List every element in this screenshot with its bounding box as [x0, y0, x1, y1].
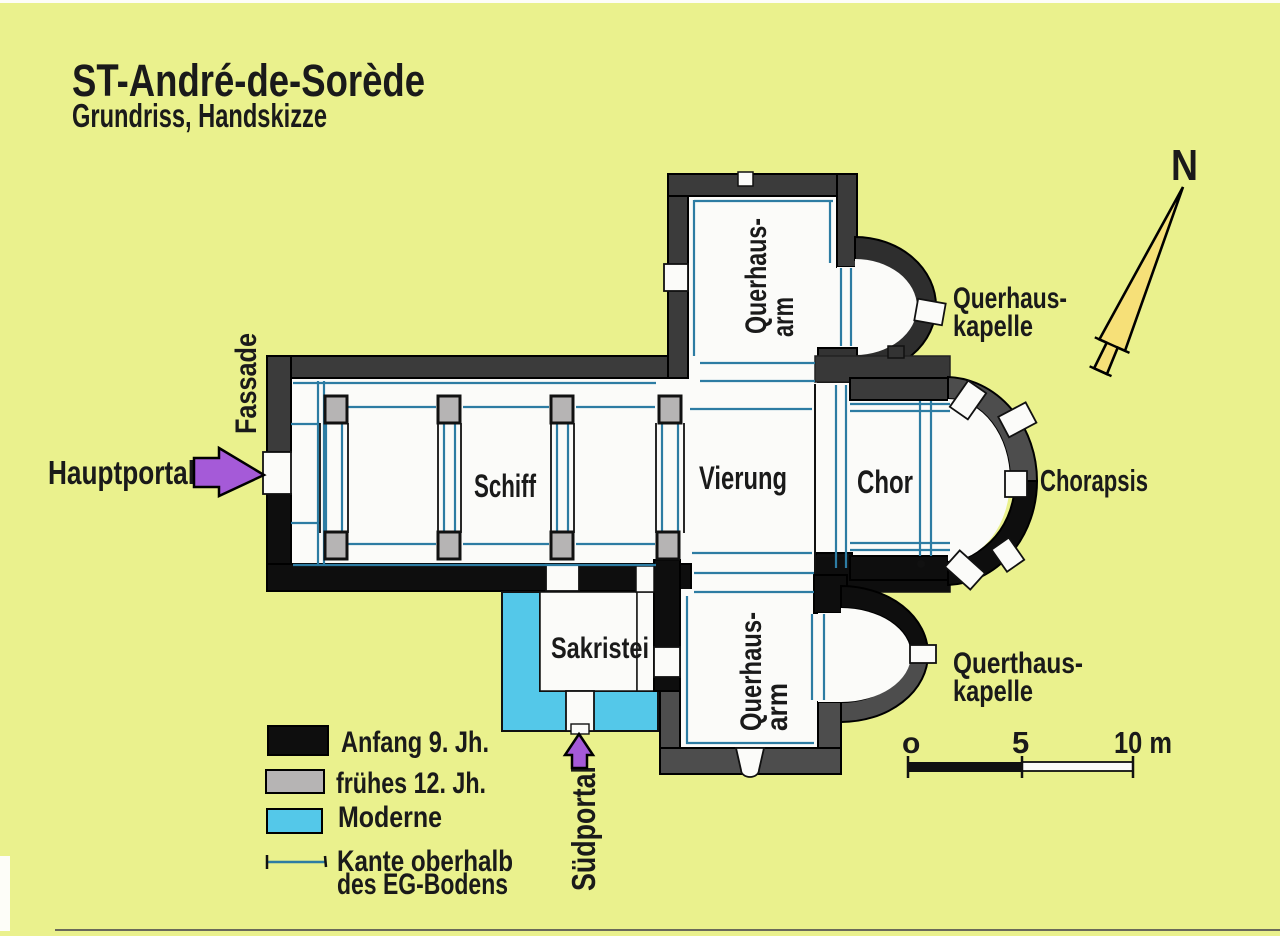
svg-text:kapelle: kapelle — [953, 675, 1033, 708]
svg-text:Anfang 9. Jh.: Anfang 9. Jh. — [341, 726, 489, 759]
svg-text:Südportal: Südportal — [565, 766, 602, 891]
svg-text:frühes 12. Jh.: frühes 12. Jh. — [336, 767, 486, 800]
svg-text:Hauptportal: Hauptportal — [48, 454, 195, 491]
svg-text:10 m: 10 m — [1114, 725, 1172, 760]
svg-text:Grundriss, Handskizze: Grundriss, Handskizze — [72, 97, 327, 134]
svg-text:Chor: Chor — [857, 464, 913, 500]
svg-text:Schiff: Schiff — [474, 468, 536, 504]
svg-text:5: 5 — [1012, 725, 1029, 760]
svg-text:o: o — [902, 727, 920, 760]
svg-text:N: N — [1171, 141, 1198, 190]
svg-text:Fassade: Fassade — [230, 333, 263, 434]
svg-text:Sakristei: Sakristei — [551, 632, 649, 665]
svg-text:arm: arm — [761, 683, 794, 731]
svg-text:Chorapsis: Chorapsis — [1040, 463, 1148, 498]
svg-text:arm: arm — [767, 297, 800, 337]
svg-text:Moderne: Moderne — [338, 801, 442, 834]
svg-text:kapelle: kapelle — [953, 310, 1033, 343]
svg-text:Vierung: Vierung — [699, 460, 787, 496]
svg-text:des EG-Bodens: des EG-Bodens — [337, 868, 508, 901]
